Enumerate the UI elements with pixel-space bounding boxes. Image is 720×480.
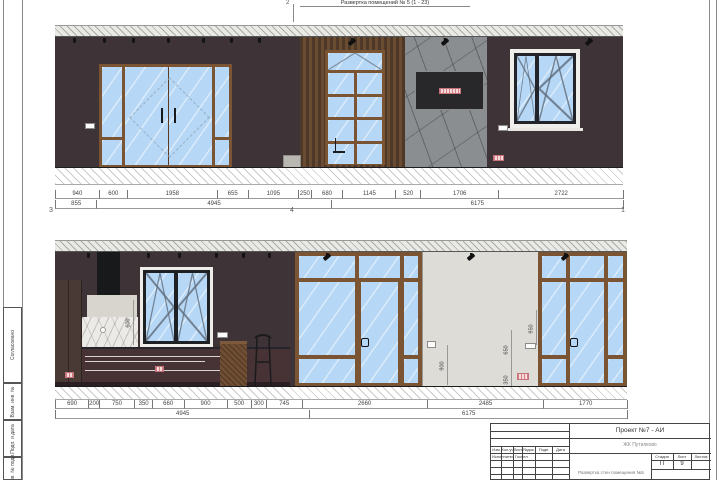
glass-door-unit-left: [99, 64, 232, 168]
dimension-segment: 4945: [55, 410, 309, 419]
executor-name: Госпел: [515, 454, 528, 459]
stage-label: Стадия: [651, 454, 673, 459]
dimension-segment: 4945: [96, 200, 330, 209]
track-spotlight-icon: [467, 253, 476, 263]
downlight-icon: [202, 38, 205, 43]
dimension-segment: 600: [99, 190, 127, 199]
downlight-icon: [215, 253, 218, 258]
titleblock-line: [491, 460, 569, 461]
track-spotlight-icon: [441, 38, 450, 48]
dimension-segment: 855: [55, 200, 96, 209]
grid-marker-1: 1: [621, 207, 625, 214]
object-name: ЖК Путилково: [569, 442, 711, 448]
tv-socket-tag: [439, 88, 461, 94]
casement-left: [146, 273, 174, 341]
kitchen-window: [140, 267, 213, 347]
downlight-icon: [132, 38, 135, 43]
wall-joint-line: [422, 252, 423, 387]
mullion: [212, 67, 215, 165]
dimension-segment: 300: [251, 400, 266, 409]
floor-hatch-band: [55, 387, 627, 400]
ceiling-band: [55, 240, 627, 252]
fixed-pane-lower: [608, 359, 623, 383]
downlight-icon: [147, 253, 150, 258]
transom-pane: [328, 53, 382, 70]
downlight-icon: [103, 38, 106, 43]
sidelite-right-upper: [215, 67, 229, 137]
transom-pane: [404, 256, 418, 278]
section-marker-2: 2: [286, 0, 289, 6]
switch-tag: [498, 125, 508, 131]
window-sill: [507, 128, 583, 131]
sheet-label: Лист: [673, 454, 691, 459]
floor-lamp-stem: [335, 138, 336, 152]
switch-tag: [217, 332, 228, 338]
dimension-segment: 2485: [427, 400, 544, 409]
vertical-dimension: 950: [536, 310, 537, 345]
dimension-segment: 6175: [331, 200, 623, 209]
dimension-segment: 900: [184, 400, 227, 409]
switch-tag: [85, 123, 95, 129]
dimension-segment: 680: [311, 190, 343, 199]
dimension-segment: 940: [55, 190, 99, 199]
grid-pane: [357, 97, 383, 118]
socket-tag: [155, 366, 164, 372]
dimension-row: 49456175: [55, 410, 628, 419]
transom-pane: [570, 256, 604, 278]
drawer-gap-line: [85, 370, 220, 371]
grid-pane: [357, 73, 383, 94]
window-sash-frame: [143, 270, 210, 344]
fixed-pane: [542, 282, 566, 355]
vertical-dimension: 900: [447, 345, 448, 385]
downlight-icon: [230, 38, 233, 43]
glazed-wall-right: [538, 252, 627, 387]
vertical-dimension: 650: [511, 330, 512, 368]
cabinet-gap-line: [68, 280, 69, 387]
dimension-segment: 2660: [302, 400, 427, 409]
dimension-segment: 745: [266, 400, 302, 409]
doc-title: Развертка стен помещения №5: [573, 470, 649, 475]
title-block: Проект №7 - АИ ЖК Путилково Изм. Кол.уч …: [490, 423, 710, 480]
downlight-icon: [258, 38, 261, 43]
downlight-icon: [178, 253, 181, 258]
sheet-number: 9: [673, 461, 691, 467]
glass-door: [361, 282, 398, 383]
elevation-bottom: 600 900 650 350 950: [55, 240, 627, 400]
grid-pane: [328, 97, 354, 118]
socket-tag: [517, 373, 529, 380]
dimension-segment: 655: [217, 190, 248, 199]
vertical-dimension: 600: [133, 300, 134, 345]
extractor-hood: [97, 252, 120, 297]
window-right: [510, 49, 580, 128]
stamp-box-agree: Согласовано: [3, 307, 22, 383]
dimension-segment: 660: [152, 400, 184, 409]
dimension-segment: 6175: [309, 410, 627, 419]
bar-stool: [253, 330, 273, 387]
socket-dot: [100, 327, 106, 333]
sidelite-left-upper: [102, 67, 122, 137]
frame-line-right-inner: [709, 0, 710, 480]
grid-marker-4: 4: [290, 207, 294, 214]
dimension-segment: 1958: [127, 190, 217, 199]
rail: [102, 137, 122, 140]
col-ndok: №док.: [522, 447, 536, 452]
sheets-label: Листов: [691, 454, 711, 459]
window-sash-frame: [514, 53, 576, 124]
drawing-sheet: 2 Развертка помещений № 5 (1 - 23): [0, 0, 720, 480]
dimension-segment: 2722: [498, 190, 623, 199]
grid-pane: [328, 144, 354, 165]
sheet-title: Развертка помещений № 5 (1 - 23): [300, 0, 470, 7]
switch-tag: [525, 343, 536, 349]
downlight-icon: [73, 38, 76, 43]
tall-cabinet: [55, 280, 82, 387]
sidelite-left-lower: [102, 140, 122, 165]
casement-right: [178, 273, 207, 341]
track-spotlight-icon: [561, 253, 570, 263]
socket-tag: [493, 155, 504, 161]
glazed-wall-middle: [295, 252, 422, 387]
dimension-segment: 1706: [420, 190, 498, 199]
dimension-segment: 1145: [342, 190, 395, 199]
transom-pane: [359, 256, 400, 278]
stage-value: П: [651, 461, 673, 467]
tv-panel: [415, 71, 484, 110]
dimension-segment: 750: [99, 400, 135, 409]
fixed-pane: [404, 282, 418, 355]
downlight-icon: [167, 38, 170, 43]
project-name: Проект №7 - АИ: [569, 427, 711, 434]
gridded-glass-door: [325, 50, 385, 165]
frame-line-left-inner: [22, 0, 23, 480]
dimension-segment: 500: [227, 400, 251, 409]
drawer-gap-line: [85, 361, 205, 362]
executor-label: Исполнитель: [492, 454, 513, 459]
transom-pane: [608, 256, 623, 278]
grid-pane: [357, 120, 383, 141]
glass-door: [570, 282, 604, 383]
elevation-top: [55, 25, 623, 185]
casement-left: [517, 56, 535, 121]
floor-lamp-base: [333, 151, 345, 153]
downlight-icon: [242, 253, 245, 258]
titleblock-line: [491, 474, 569, 475]
door-handle: [361, 338, 369, 347]
dimension-row: 94060019586551095250680114552017062722: [55, 190, 624, 199]
dimension-row: 690200750350660900500300745266024851770: [55, 400, 628, 409]
dimension-segment: 1770: [543, 400, 627, 409]
fixed-pane-lower: [542, 359, 566, 383]
bar-counter: [220, 344, 247, 387]
track-spotlight-icon: [323, 253, 332, 263]
stamp-box-inv: Инв. № подл.: [3, 457, 22, 480]
dimension-segment: 520: [395, 190, 420, 199]
downlight-icon: [268, 253, 271, 258]
track-spotlight-icon: [348, 38, 357, 48]
socket-tag: [65, 372, 74, 378]
rail: [215, 137, 229, 140]
mullion: [122, 67, 125, 165]
sidelite-right-lower: [215, 140, 229, 165]
track-spotlight-icon: [585, 38, 594, 48]
vertical-dimension: 350: [511, 368, 512, 387]
fixed-pane-lower: [299, 359, 355, 383]
titleblock-line: [651, 469, 711, 470]
casement-right: [539, 56, 573, 121]
grid-pane: [357, 144, 383, 165]
stamp-box-vzam: Взам. инв. №: [3, 383, 22, 420]
dimension-segment: 200: [88, 400, 98, 409]
door-handle: [570, 338, 578, 347]
grid-pane: [328, 73, 354, 94]
upper-wall-panel: [87, 295, 137, 317]
dimension-segment: 1095: [248, 190, 299, 199]
switch-tag: [427, 341, 436, 348]
dimension-segment: 250: [298, 190, 310, 199]
grid-pane: [328, 120, 354, 141]
dimension-segment: 350: [134, 400, 151, 409]
fixed-pane: [608, 282, 623, 355]
titleblock-line: [569, 438, 711, 439]
titleblock-line: [491, 438, 569, 439]
stamp-box-podp: Подп. и дата: [3, 420, 22, 457]
floor-hatch-band: [55, 168, 623, 185]
section-marker-line: [293, 4, 294, 22]
frame-line-right-outer: [716, 0, 717, 480]
col-podp: Подп.: [535, 447, 553, 452]
titleblock-line: [491, 467, 569, 468]
drawer-gap-line: [85, 356, 220, 357]
fixed-pane-lower: [404, 359, 418, 383]
ceiling-band: [55, 25, 623, 37]
fixed-pane: [299, 282, 355, 355]
grid-marker-3: 3: [49, 207, 53, 214]
dimension-row: 85549456175: [55, 200, 624, 209]
downlight-icon: [87, 253, 90, 258]
titleblock-line: [491, 431, 569, 432]
col-data: Дата: [552, 447, 569, 452]
dimension-segment: 690: [55, 400, 88, 409]
